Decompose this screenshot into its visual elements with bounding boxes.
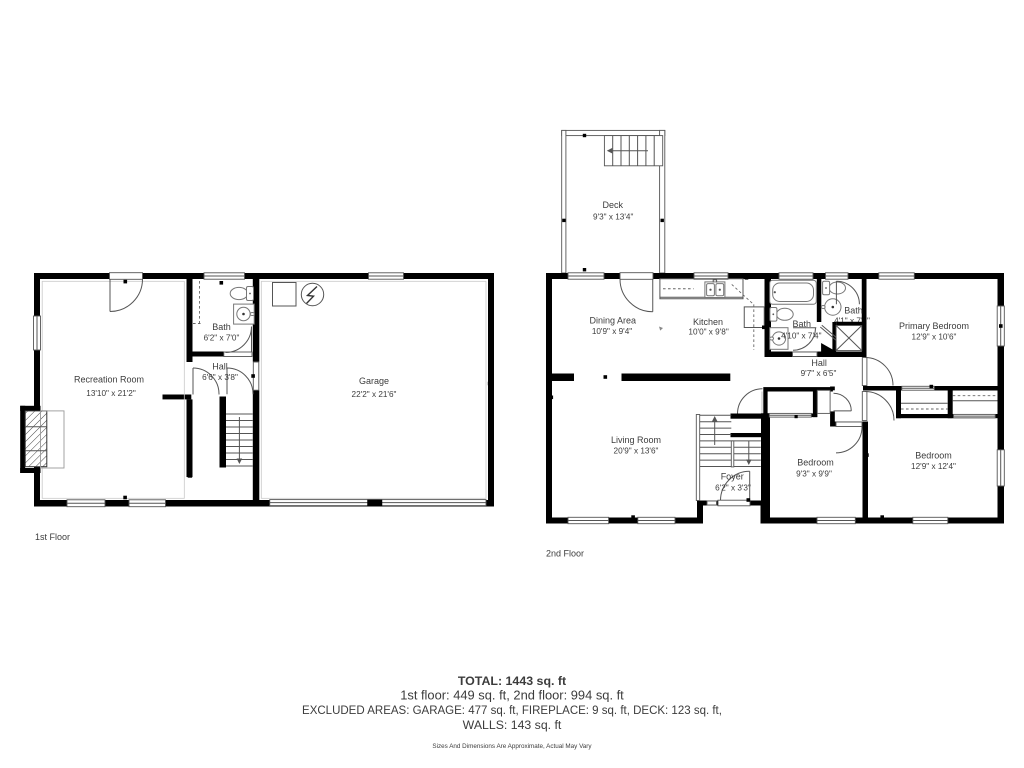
svg-text:EXCLUDED AREAS: GARAGE: 477 sq: EXCLUDED AREAS: GARAGE: 477 sq. ft, FIRE…: [302, 705, 722, 717]
svg-text:Recreation Room: Recreation Room: [74, 375, 144, 385]
svg-text:9'3" x 9'9": 9'3" x 9'9": [796, 470, 832, 479]
svg-text:12'9" x 12'4": 12'9" x 12'4": [911, 462, 956, 471]
svg-text:Hall: Hall: [811, 358, 827, 368]
svg-text:TOTAL: 1443 sq. ft: TOTAL: 1443 sq. ft: [458, 674, 566, 688]
svg-text:Hall: Hall: [212, 362, 228, 372]
svg-text:Dining Area: Dining Area: [590, 316, 637, 326]
svg-text:Foyer: Foyer: [721, 471, 744, 481]
svg-text:22'2" x 21'6": 22'2" x 21'6": [352, 390, 397, 399]
svg-text:13'10" x 21'2": 13'10" x 21'2": [86, 389, 136, 398]
svg-text:1st Floor: 1st Floor: [35, 532, 70, 542]
svg-text:9'3" x 13'4": 9'3" x 13'4": [593, 213, 633, 222]
svg-text:Living Room: Living Room: [611, 435, 661, 445]
svg-text:2nd Floor: 2nd Floor: [546, 549, 584, 559]
svg-text:Sizes And Dimensions Are Appro: Sizes And Dimensions Are Approximate, Ac…: [432, 743, 592, 750]
svg-text:WALLS: 143 sq. ft: WALLS: 143 sq. ft: [463, 718, 562, 732]
svg-text:Bedroom: Bedroom: [797, 458, 834, 468]
svg-text:1st floor: 449 sq. ft, 2nd flo: 1st floor: 449 sq. ft, 2nd floor: 994 sq…: [400, 688, 624, 703]
svg-text:Bedroom: Bedroom: [915, 451, 952, 461]
svg-text:20'9" x 13'6": 20'9" x 13'6": [614, 447, 659, 456]
svg-text:6'2" x 7'0": 6'2" x 7'0": [204, 334, 240, 343]
svg-text:12'9" x 10'6": 12'9" x 10'6": [912, 332, 957, 341]
svg-text:10'0" x 9'8": 10'0" x 9'8": [688, 328, 728, 337]
svg-text:4'10" x 7'4": 4'10" x 7'4": [781, 332, 821, 341]
svg-text:9'7" x 6'5": 9'7" x 6'5": [801, 369, 837, 378]
svg-text:Bath: Bath: [844, 306, 863, 316]
svg-text:Bath: Bath: [792, 319, 811, 329]
svg-text:10'9" x 9'4": 10'9" x 9'4": [592, 327, 632, 336]
svg-text:Deck: Deck: [603, 200, 624, 210]
svg-text:Kitchen: Kitchen: [693, 317, 723, 327]
svg-text:Garage: Garage: [359, 376, 389, 386]
svg-text:Bath: Bath: [212, 322, 231, 332]
svg-text:Primary Bedroom: Primary Bedroom: [899, 321, 969, 331]
svg-text:6'6" x 3'8": 6'6" x 3'8": [202, 373, 238, 382]
svg-text:6'2" x 3'3": 6'2" x 3'3": [715, 483, 751, 492]
